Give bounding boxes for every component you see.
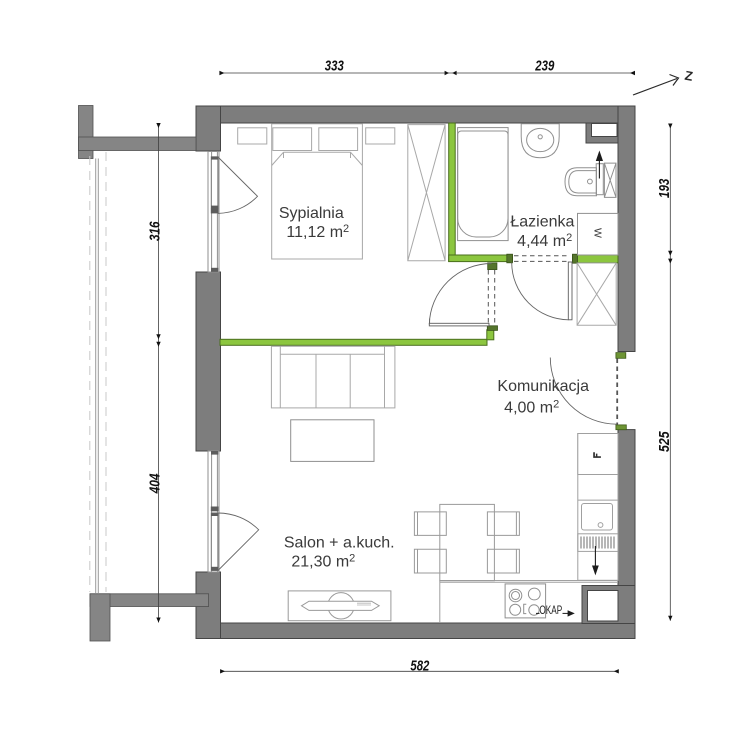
svg-text:21,30 m2: 21,30 m2: [291, 552, 355, 570]
svg-text:11,12 m2: 11,12 m2: [286, 223, 349, 241]
svg-text:Salon + a.kuch.: Salon + a.kuch.: [284, 535, 395, 552]
svg-text:316: 316: [148, 221, 164, 241]
svg-text:404: 404: [148, 473, 164, 494]
svg-text:4,00 m2: 4,00 m2: [504, 398, 559, 416]
svg-text:4,44 m2: 4,44 m2: [517, 232, 572, 250]
svg-text:582: 582: [410, 659, 429, 675]
svg-text:Komunikacja: Komunikacja: [497, 378, 589, 395]
svg-text:Łazienka: Łazienka: [510, 214, 574, 231]
svg-text:239: 239: [535, 58, 555, 74]
svg-text:Sypialnia: Sypialnia: [279, 205, 344, 222]
svg-text:OKAP: OKAP: [539, 603, 562, 617]
svg-text:525: 525: [657, 431, 673, 452]
svg-text:333: 333: [325, 58, 344, 74]
svg-text:193: 193: [657, 179, 673, 198]
svg-text:W: W: [592, 228, 604, 238]
